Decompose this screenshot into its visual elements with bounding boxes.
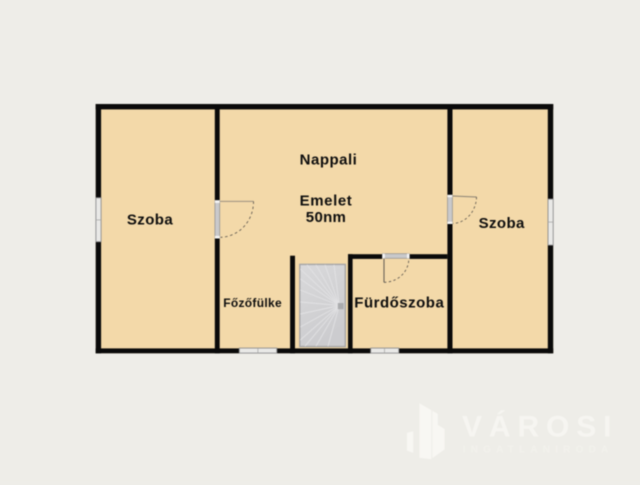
svg-text:50nm: 50nm bbox=[306, 209, 346, 226]
svg-text:Nappali: Nappali bbox=[300, 151, 358, 168]
svg-text:Főzőfülke: Főzőfülke bbox=[223, 296, 282, 310]
svg-text:Szoba: Szoba bbox=[479, 215, 525, 232]
svg-text:Emelet: Emelet bbox=[300, 192, 353, 209]
svg-text:VÁROSI: VÁROSI bbox=[462, 410, 618, 444]
svg-text:Fürdőszoba: Fürdőszoba bbox=[354, 295, 444, 312]
svg-text:Szoba: Szoba bbox=[127, 211, 173, 228]
svg-text:INGATLANIRODA: INGATLANIRODA bbox=[463, 444, 614, 455]
